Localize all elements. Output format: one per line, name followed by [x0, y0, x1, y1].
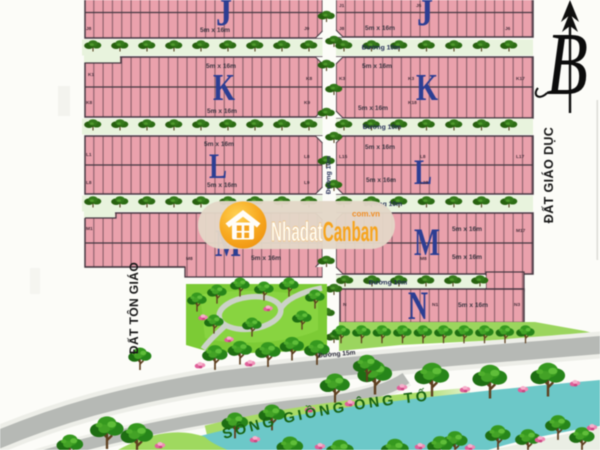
svg-text:J6: J6 [505, 26, 511, 32]
svg-text:K8: K8 [86, 100, 92, 106]
svg-text:M1: M1 [86, 226, 93, 232]
svg-text:K9: K9 [304, 100, 310, 106]
svg-text:K17: K17 [516, 76, 525, 82]
svg-text:N3: N3 [514, 302, 520, 308]
svg-text:5m x 16m: 5m x 16m [452, 226, 482, 233]
svg-text:K18: K18 [408, 100, 417, 106]
svg-text:J9: J9 [304, 26, 310, 32]
svg-text:5m x 16m: 5m x 16m [251, 255, 281, 262]
svg-text:Đường 10m: Đường 10m [326, 156, 333, 194]
svg-text:K3: K3 [339, 76, 345, 82]
svg-text:5m x 16m: 5m x 16m [206, 63, 236, 70]
svg-text:J8: J8 [86, 26, 92, 32]
svg-text:L8: L8 [86, 180, 92, 186]
svg-text:Đường 10m: Đường 10m [363, 124, 401, 131]
svg-text:K3: K3 [408, 76, 414, 82]
svg-text:J5: J5 [416, 3, 422, 9]
svg-text:5m x 16m: 5m x 16m [365, 144, 395, 151]
svg-text:ĐẤT TÔN GIÁO: ĐẤT TÔN GIÁO [126, 262, 141, 354]
svg-text:5m x 16m: 5m x 16m [365, 25, 395, 32]
svg-text:5m x 16m: 5m x 16m [362, 63, 392, 70]
svg-text:5m x 16m: 5m x 16m [200, 27, 230, 34]
svg-text:5m x 16m: 5m x 16m [204, 141, 234, 148]
svg-text:L9: L9 [304, 180, 310, 186]
svg-text:M17: M17 [516, 228, 526, 234]
svg-text:Đường 10m: Đường 10m [369, 280, 407, 287]
svg-text:J8: J8 [339, 26, 345, 32]
svg-text:B: B [546, 15, 588, 114]
svg-text:K1: K1 [88, 72, 94, 78]
svg-text:5m x 16m: 5m x 16m [207, 182, 237, 189]
svg-text:L8: L8 [420, 154, 426, 160]
svg-text:NhadatCanban: NhadatCanban [271, 216, 379, 247]
svg-text:5m x 16m: 5m x 16m [366, 177, 396, 184]
svg-text:L15: L15 [339, 154, 348, 160]
svg-text:5m x 16m: 5m x 16m [452, 254, 482, 261]
svg-text:5m x 16m: 5m x 16m [207, 108, 237, 115]
svg-text:M8: M8 [420, 256, 427, 262]
svg-text:L17: L17 [516, 154, 525, 160]
svg-text:N: N [408, 283, 428, 328]
svg-text:5m x 16m: 5m x 16m [458, 302, 488, 309]
svg-text:N: N [343, 302, 347, 308]
svg-text:com.vn: com.vn [352, 210, 380, 219]
svg-text:K8: K8 [306, 76, 312, 82]
svg-text:N1: N1 [432, 302, 438, 308]
svg-text:M8: M8 [186, 256, 193, 262]
svg-text:5m x 16m: 5m x 16m [358, 105, 388, 112]
svg-text:Đường 10m: Đường 10m [362, 45, 400, 52]
svg-text:K: K [416, 67, 438, 109]
svg-text:L: L [209, 146, 227, 186]
svg-text:M: M [414, 221, 440, 264]
svg-text:K: K [213, 67, 235, 109]
svg-text:L1: L1 [86, 152, 92, 158]
svg-text:J1: J1 [339, 3, 345, 9]
svg-text:ĐẤT GIÁO DỤC: ĐẤT GIÁO DỤC [541, 127, 556, 223]
svg-text:L28: L28 [420, 180, 429, 186]
svg-text:L8: L8 [304, 154, 310, 160]
